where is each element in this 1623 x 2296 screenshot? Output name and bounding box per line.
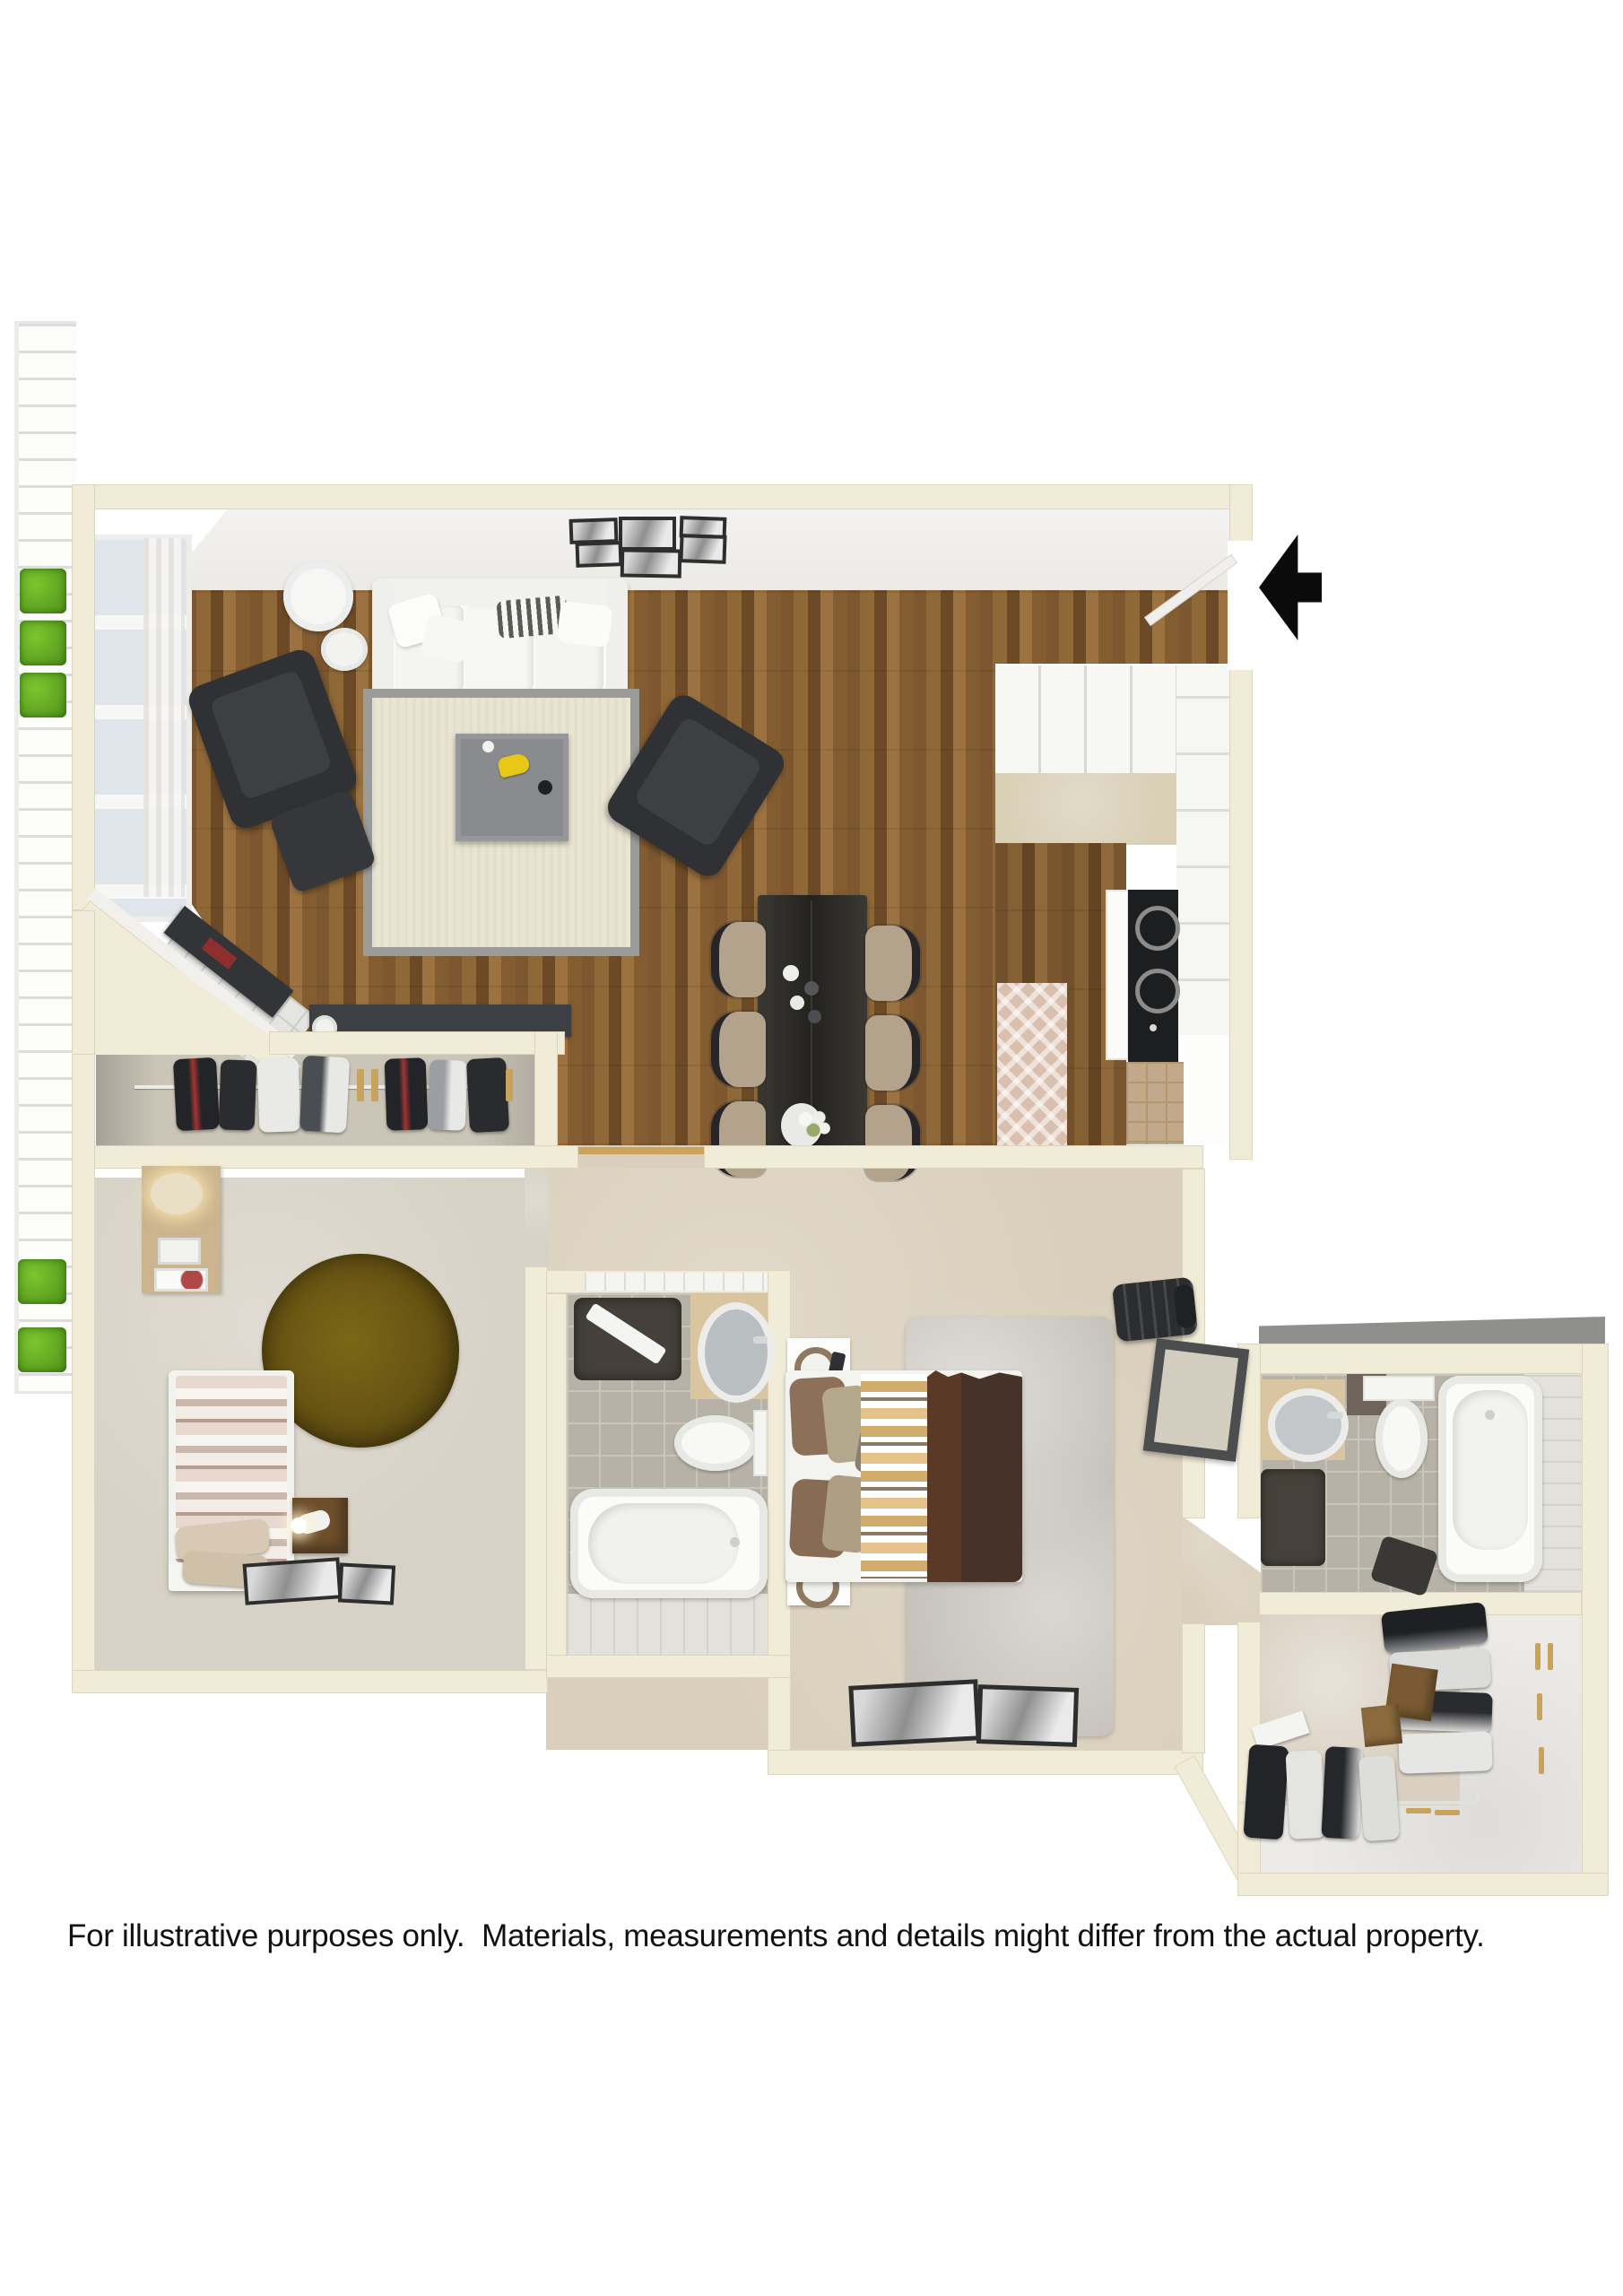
wall-left-lower (72, 1054, 95, 1693)
storage-box (1361, 1704, 1402, 1747)
toilet-tank (1363, 1376, 1435, 1401)
hanging-garment (299, 1056, 350, 1134)
kitchen-right-cabinets (1176, 665, 1231, 1035)
toilet-tank (753, 1410, 768, 1476)
bedroom-door-opening (525, 1169, 548, 1267)
oven-washer-unit (1128, 890, 1178, 1062)
coffee-table (456, 734, 568, 841)
desk-chair (1112, 1276, 1198, 1342)
balcony-railing (14, 321, 76, 1394)
dining-chair (711, 1012, 766, 1087)
towel (585, 1302, 666, 1364)
dining-chair (711, 922, 766, 997)
leaning-art-frame (848, 1679, 980, 1746)
dining-chair (865, 1015, 920, 1091)
throw-pillow (556, 601, 612, 648)
threshold-strip (578, 1147, 704, 1154)
bowl (804, 981, 819, 996)
hanging-garment (1358, 1755, 1400, 1842)
hanging-garment (466, 1057, 509, 1133)
wall-left-upper (72, 484, 95, 910)
leaning-mirror (1143, 1338, 1250, 1462)
utility-nook (1184, 1035, 1229, 1144)
shelf-frames (154, 1268, 208, 1291)
planter-box-icon (20, 569, 66, 613)
drain-icon (1485, 1410, 1495, 1420)
kitchen-mat (997, 983, 1067, 1157)
side-stool (321, 628, 368, 671)
ensuite-passage-carpet (1182, 1516, 1261, 1625)
faucet-icon (1327, 1412, 1343, 1419)
wall-ensuite-top (1237, 1344, 1609, 1374)
bath-ledge-tile (585, 1273, 768, 1291)
wall-bath-bottom (546, 1655, 791, 1678)
hanger-icon (371, 1069, 378, 1101)
hanging-garment (257, 1057, 301, 1133)
bath-mat (574, 1298, 681, 1380)
armchair-cushion (633, 715, 764, 848)
drain-icon (730, 1537, 740, 1547)
wall-art-frame (679, 534, 726, 564)
control-dot (1150, 1024, 1157, 1031)
hanger-icon (1537, 1693, 1542, 1720)
disclaimer-text: For illustrative purposes only. Material… (67, 1918, 1592, 1955)
planter-box-icon (20, 673, 66, 717)
nightstand-cube (292, 1498, 348, 1553)
hanger-icon (1435, 1810, 1460, 1815)
hanging-garment (219, 1059, 257, 1130)
leaning-art-frame (338, 1562, 395, 1605)
hanger-icon (1535, 1643, 1541, 1670)
bed-striped-sheet (861, 1374, 929, 1578)
wall-bedroom-right (525, 1266, 548, 1670)
bathtub (570, 1489, 768, 1598)
entry-arrow-icon (1259, 535, 1322, 640)
planter-box-icon (20, 621, 66, 665)
shelf-books (158, 1238, 201, 1265)
cup (482, 741, 494, 752)
master-bed (785, 1370, 1022, 1582)
planter-box-icon (18, 1259, 66, 1304)
hanging-garment (428, 1059, 468, 1130)
wall-closet-top (269, 1031, 565, 1055)
floor-plan-canvas: For illustrative purposes only. Material… (0, 0, 1623, 2296)
sink-basin (1268, 1388, 1349, 1462)
bathtub-basin (588, 1503, 739, 1584)
leaning-art-frame (243, 1557, 343, 1605)
armchair-cushion (209, 669, 333, 800)
wall-top (72, 484, 1253, 509)
bowl (808, 1010, 821, 1023)
wall-bath-left (546, 1293, 567, 1677)
washer-door-ring-icon (1135, 969, 1180, 1013)
vanity-counter (690, 1293, 768, 1399)
hanging-garment (385, 1057, 429, 1131)
wall-left-mid (72, 910, 95, 1056)
wall-bedroom-bottom (72, 1670, 548, 1693)
hanger-icon (1406, 1808, 1431, 1813)
cup (538, 780, 552, 795)
dining-chair (865, 1105, 920, 1180)
bedroom-shelf (142, 1166, 221, 1293)
flowers (794, 1109, 833, 1144)
wall-lamp-icon (151, 1173, 203, 1214)
wall-master-bottom (768, 1750, 1203, 1775)
sofa-armrest (372, 578, 394, 697)
wall-art-frame (619, 517, 676, 551)
hanging-garment (1398, 1731, 1492, 1774)
planter-box-icon (18, 1327, 66, 1372)
toilet (1376, 1399, 1428, 1478)
curtain (143, 538, 185, 897)
toilet (674, 1415, 757, 1471)
vanity-counter (1261, 1379, 1345, 1460)
washer-door-ring-icon (1135, 906, 1180, 951)
lamp-glow (291, 1518, 307, 1534)
wall-ensuite-bottom (1237, 1873, 1609, 1896)
kitchen-tile-patch (1126, 1062, 1184, 1144)
leaning-art-frame (976, 1684, 1079, 1747)
hanger-icon (506, 1069, 513, 1101)
wall-master-right-lower (1182, 1623, 1205, 1753)
bathroom-plank-strip (567, 1594, 768, 1655)
hanging-garment (173, 1057, 220, 1131)
wall-ensuite-right (1582, 1344, 1609, 1896)
hanging-garment (1285, 1750, 1325, 1839)
dining-table (758, 895, 867, 1155)
hanger-icon (1539, 1747, 1544, 1774)
dishwasher (1106, 890, 1129, 1060)
bed-blanket (927, 1370, 1022, 1582)
round-side-table (283, 561, 353, 631)
sink-basin (698, 1302, 775, 1403)
plate (783, 965, 799, 981)
wall-mid-right (704, 1145, 1203, 1169)
fireplace-accent (202, 937, 238, 970)
faucet-icon (753, 1336, 768, 1344)
plate (790, 996, 804, 1010)
dining-chair (865, 926, 920, 1001)
bathtub (1438, 1376, 1542, 1582)
wall-art-frame (621, 548, 682, 578)
throw-pillow (421, 613, 473, 663)
hanging-garment (1321, 1746, 1363, 1839)
sofa-armrest (606, 578, 628, 697)
wall-art-frame (569, 517, 619, 544)
bath-mat (1261, 1469, 1325, 1566)
wall-art-frame (576, 541, 623, 568)
hanging-garment (1243, 1744, 1289, 1840)
hanger-icon (1548, 1643, 1553, 1670)
sofa (372, 578, 628, 697)
hanger-icon (357, 1069, 364, 1101)
